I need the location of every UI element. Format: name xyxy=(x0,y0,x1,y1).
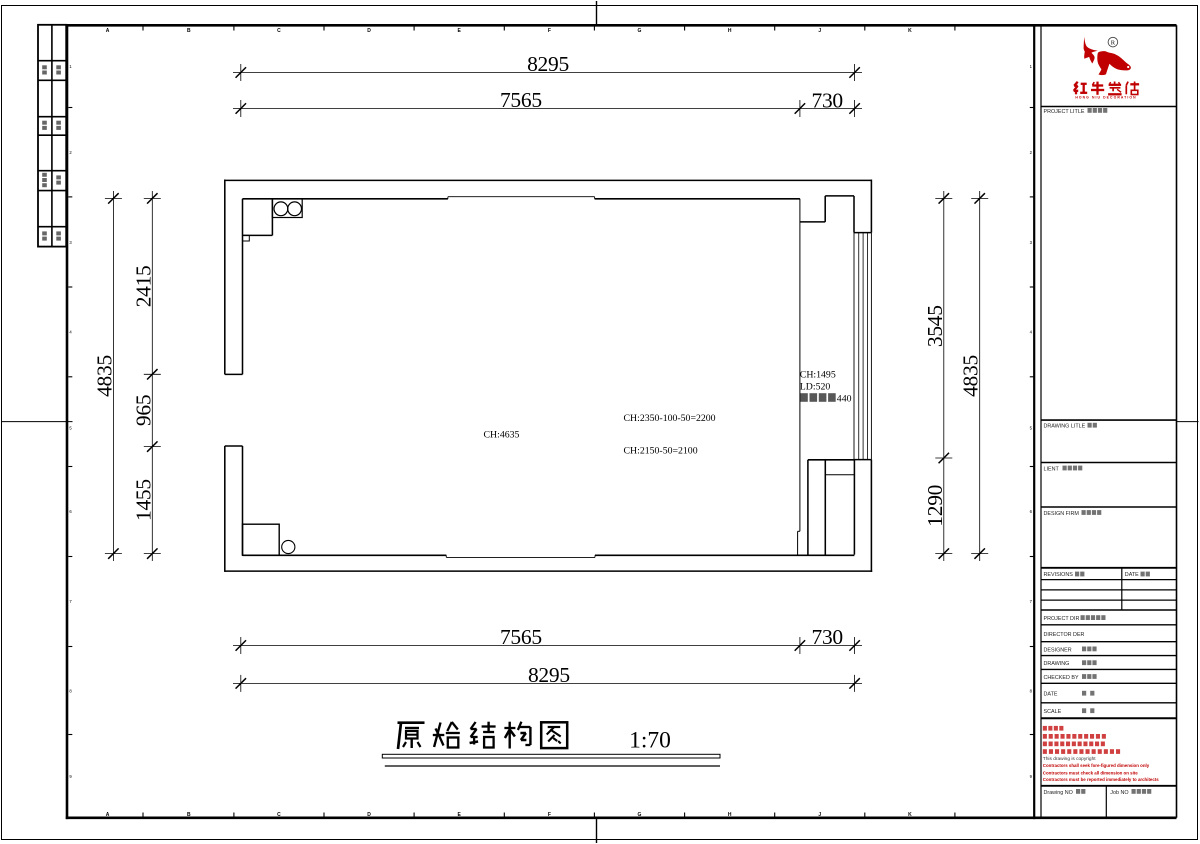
svg-text:SCALE: SCALE xyxy=(1044,709,1062,715)
svg-text:This drawing is copyright: This drawing is copyright xyxy=(1043,756,1096,762)
svg-text:Contractors shall seek fore-fi: Contractors shall seek fore-figured dime… xyxy=(1043,763,1150,768)
svg-text:C: C xyxy=(277,812,281,818)
svg-text:4835: 4835 xyxy=(959,355,983,397)
svg-text:7565: 7565 xyxy=(500,88,542,112)
svg-text:4835: 4835 xyxy=(92,355,116,397)
svg-text:Contractors must check all dim: Contractors must check all dimension on … xyxy=(1043,771,1138,776)
svg-text:F: F xyxy=(548,28,551,34)
svg-text:CH:2350-100-50=2200: CH:2350-100-50=2200 xyxy=(624,413,716,424)
svg-text:PROJECT LITLE: PROJECT LITLE xyxy=(1044,109,1085,115)
svg-text:PROJECT DIR: PROJECT DIR xyxy=(1044,616,1080,622)
svg-text:K: K xyxy=(908,28,912,34)
svg-text:G: G xyxy=(638,812,642,818)
svg-text:J: J xyxy=(818,28,821,34)
svg-text:HONG NIU DECORATION: HONG NIU DECORATION xyxy=(1075,95,1136,99)
svg-text:8295: 8295 xyxy=(527,52,569,76)
svg-text:G: G xyxy=(638,28,642,34)
svg-text:J: J xyxy=(818,812,821,818)
svg-text:Job NO: Job NO xyxy=(1110,790,1128,796)
svg-text:7565: 7565 xyxy=(500,625,542,649)
svg-text:Drawing NO: Drawing NO xyxy=(1044,790,1073,796)
svg-text:D: D xyxy=(367,812,371,818)
svg-text:965: 965 xyxy=(131,395,155,426)
svg-text:A: A xyxy=(106,28,110,34)
svg-text:1:70: 1:70 xyxy=(629,728,671,754)
svg-text:H: H xyxy=(728,28,732,34)
svg-text:730: 730 xyxy=(812,89,843,113)
svg-text:CH:4635: CH:4635 xyxy=(484,429,520,440)
svg-text:DRAWING: DRAWING xyxy=(1044,661,1070,667)
svg-text:R: R xyxy=(1111,40,1116,47)
svg-text:DESIGNER: DESIGNER xyxy=(1044,647,1072,653)
svg-text:DATE: DATE xyxy=(1125,572,1139,578)
svg-text:730: 730 xyxy=(812,625,843,649)
svg-text:A: A xyxy=(106,812,110,818)
svg-text:Contractors must be reported i: Contractors must be reported immediately… xyxy=(1043,777,1159,782)
svg-text:3545: 3545 xyxy=(923,305,947,347)
svg-text:CHECKED BY: CHECKED BY xyxy=(1044,675,1079,681)
svg-text:DRAWING LITLE: DRAWING LITLE xyxy=(1044,424,1086,430)
svg-text:CH:2150-50=2100: CH:2150-50=2100 xyxy=(624,446,698,457)
svg-text:LD:520: LD:520 xyxy=(800,382,831,393)
svg-text:440: 440 xyxy=(837,394,852,405)
svg-text:1455: 1455 xyxy=(131,479,155,521)
svg-text:F: F xyxy=(548,812,551,818)
svg-text:K: K xyxy=(908,812,912,818)
svg-text:REVISIONS: REVISIONS xyxy=(1044,572,1074,578)
svg-text:1290: 1290 xyxy=(923,485,947,527)
svg-text:CH:1495: CH:1495 xyxy=(800,370,836,381)
svg-text:LIENT: LIENT xyxy=(1044,466,1060,472)
svg-text:DATE: DATE xyxy=(1044,692,1058,698)
svg-text:B: B xyxy=(187,812,191,818)
svg-text:D: D xyxy=(367,28,371,34)
svg-text:B: B xyxy=(187,28,191,34)
svg-text:2415: 2415 xyxy=(131,265,155,307)
svg-text:C: C xyxy=(277,28,281,34)
svg-text:DIRECTOR DER: DIRECTOR DER xyxy=(1044,632,1085,638)
svg-text:H: H xyxy=(728,812,732,818)
svg-text:8295: 8295 xyxy=(528,663,570,687)
svg-text:DESIGN FIRM: DESIGN FIRM xyxy=(1044,511,1080,517)
